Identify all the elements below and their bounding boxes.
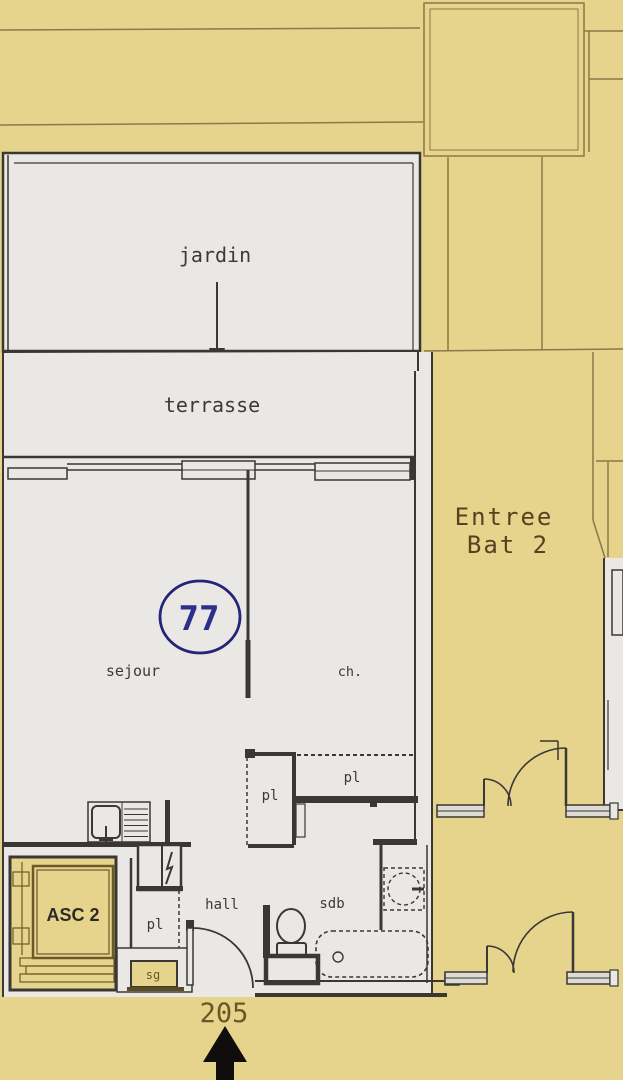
living-label: sejour (106, 662, 160, 680)
elevator: ASC 2 (10, 857, 116, 990)
terrace-label: terrasse (164, 393, 260, 417)
vanity-unit (266, 956, 318, 983)
door-number: 205 (200, 998, 249, 1029)
electrical-closet (136, 845, 183, 891)
terrace-top-wall (3, 351, 374, 352)
entrance-label-line2: Bat 2 (467, 531, 549, 559)
garden-label: jardin (179, 243, 251, 267)
service-room-label: sg (146, 968, 160, 982)
entrance-label-line1: Entree (455, 503, 554, 531)
closet-hall-label: pl (147, 917, 164, 933)
closet-left-label: pl (262, 788, 279, 804)
elevator-label: ASC 2 (46, 905, 99, 925)
neighbour-unit-strip (604, 558, 623, 810)
unit-number: 77 (179, 599, 220, 639)
floor-plan-canvas: jardin terrasse sejour ch. (0, 0, 623, 1080)
hall-label: hall (205, 897, 239, 913)
floor-plan-photo: jardin terrasse sejour ch. (0, 0, 623, 1080)
service-room: sg (117, 948, 192, 992)
closet-right-label: pl (344, 770, 361, 786)
bathroom-label: sdb (319, 896, 344, 912)
window-1 (8, 468, 67, 479)
bedroom-label: ch. (338, 664, 362, 680)
